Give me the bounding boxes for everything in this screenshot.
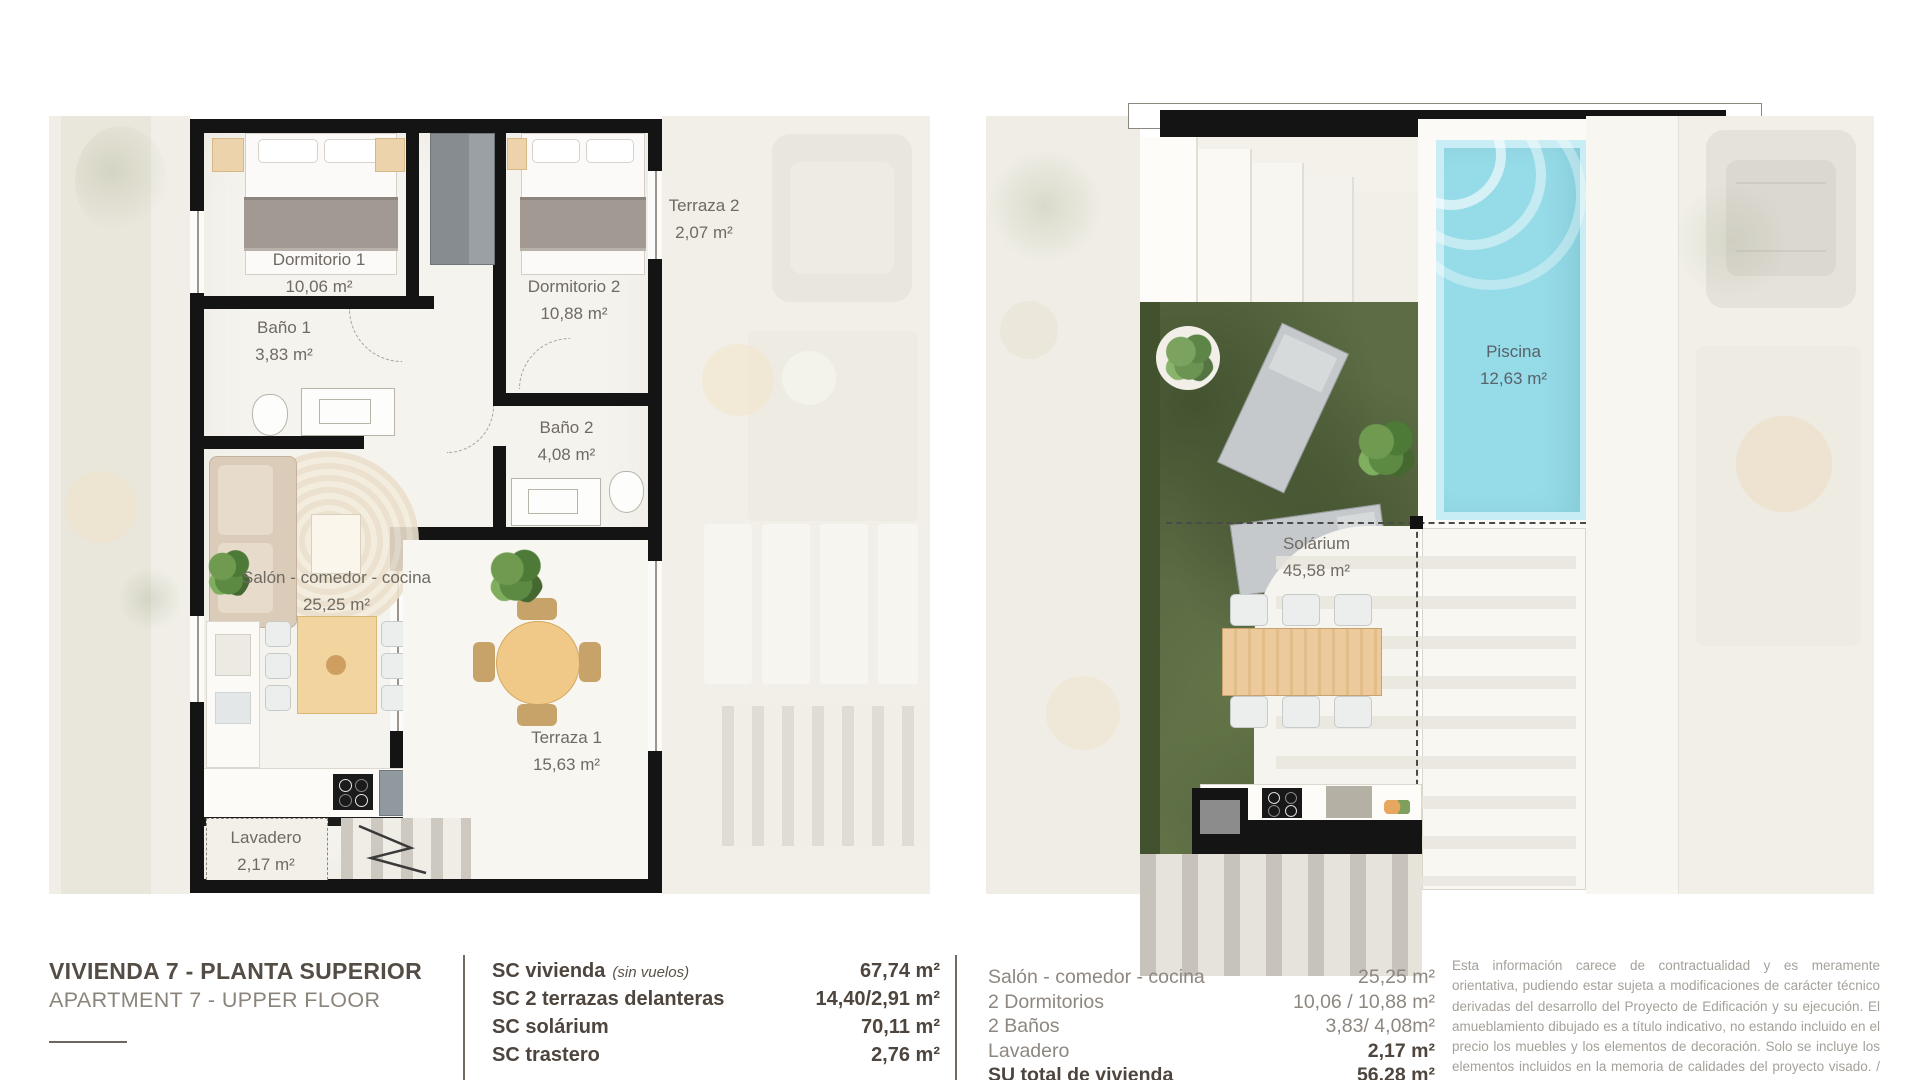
washbasin-bano1 (301, 388, 395, 436)
washbasin-bano2 (511, 478, 601, 526)
wall-bano1-bottom (204, 436, 364, 449)
pool (1436, 140, 1588, 520)
wall-dorm1-right (406, 133, 419, 309)
room-list-row-total: SU total de vivienda 56,28 m² (988, 1064, 1435, 1080)
right-neighbour-area (662, 116, 930, 894)
wall-bano2-left (493, 446, 506, 540)
title-block: VIVIENDA 7 - PLANTA SUPERIOR APARTMENT 7… (49, 958, 449, 1043)
outdoor-hob (1262, 788, 1302, 818)
dining-chairs-left (265, 621, 291, 711)
right-plan-right-neighbour (1586, 116, 1874, 894)
nightstand (507, 138, 527, 170)
floorplan-sheet: Dormitorio 110,06 m² Dormitorio 210,88 m… (0, 0, 1920, 1080)
stairs-top (1140, 137, 1420, 302)
plant-on-grass (1162, 330, 1216, 384)
window (190, 211, 204, 293)
outdoor-chairs-bottom (1230, 696, 1372, 728)
right-plan: Piscina12,63 m² (986, 116, 1874, 894)
terrace-table (496, 621, 580, 705)
neighbour-stairs (722, 706, 930, 846)
room-list-row: 2 Baños 3,83/ 4,08m² (988, 1015, 1435, 1040)
outdoor-sink-cover (1326, 786, 1372, 818)
wall-bottom (190, 879, 662, 893)
neighbour-tree (75, 126, 167, 236)
wall-bano2-top (493, 393, 662, 406)
sofa (209, 456, 297, 628)
storage-block (1192, 788, 1248, 854)
terrace-chair (517, 704, 557, 726)
divider-2 (955, 955, 957, 1080)
plant-on-grass (1354, 416, 1418, 480)
neighbour-round-table2 (1736, 416, 1832, 512)
nightstand (375, 138, 405, 172)
wall-dorm1-bottom (204, 296, 434, 309)
divider-1 (463, 955, 465, 1080)
neighbour-garden (748, 331, 918, 521)
dining-table (297, 616, 377, 714)
fruit-decor (1384, 800, 1410, 814)
stairs-direction-arrow (341, 818, 471, 879)
lavadero (206, 818, 328, 880)
neighbour-foliage (990, 146, 1100, 266)
wall-top (190, 119, 662, 133)
toilet-bano2 (609, 471, 644, 513)
left-neighbour-strip (49, 116, 190, 894)
neighbour-pot (1000, 301, 1058, 359)
page-subtitle: APARTMENT 7 - UPPER FLOOR (49, 988, 449, 1013)
left-plan: Dormitorio 110,06 m² Dormitorio 210,88 m… (49, 116, 930, 894)
kitchen-hob (333, 774, 373, 810)
room-list-row: Salón - comedor - cocina 25,25 m² (988, 966, 1435, 991)
boundary-marker (1410, 516, 1423, 529)
room-list-row-lavadero: Lavadero 2,17 m² (988, 1040, 1435, 1065)
window-slider-terraza (648, 561, 662, 751)
room-list: Salón - comedor - cocina 25,25 m² 2 Dorm… (988, 966, 1435, 1080)
right-plan-left-neighbour (986, 116, 1140, 894)
wall-terraza1-top (390, 527, 662, 540)
neighbour-plant (119, 566, 181, 632)
title-rule (49, 1041, 127, 1043)
sc-row-terrazas: SC 2 terrazas delanteras 14,40/2,91 m² (492, 988, 940, 1016)
toilet-bano1 (252, 394, 288, 436)
sc-row-trastero: SC trastero 2,76 m² (492, 1044, 940, 1072)
sc-row-vivienda: SC vivienda(sin vuelos) 67,74 m² (492, 960, 940, 988)
neighbour-foliage2 (1676, 176, 1786, 306)
neighbour-table (65, 471, 137, 543)
side-table (311, 514, 361, 574)
plant-terraza1 (487, 544, 545, 606)
sc-table: SC vivienda(sin vuelos) 67,74 m² SC 2 te… (492, 960, 940, 1072)
terrace-chair (579, 642, 601, 682)
page-title: VIVIENDA 7 - PLANTA SUPERIOR (49, 958, 449, 985)
terrace-chair (473, 642, 495, 682)
plant-salon (207, 544, 251, 600)
neighbour-car (772, 134, 912, 302)
nightstand (212, 138, 244, 172)
info-band: VIVIENDA 7 - PLANTA SUPERIOR APARTMENT 7… (0, 940, 1920, 1080)
window (190, 616, 204, 702)
solarium-dashed-top (1166, 522, 1586, 524)
kitchen-column (206, 621, 260, 768)
outdoor-table (1222, 628, 1382, 696)
bed-dormitorio-2 (521, 133, 645, 275)
neighbour-round-table (702, 344, 774, 416)
window (648, 171, 662, 259)
neighbour-white-chair (782, 351, 836, 405)
wardrobe (430, 133, 495, 265)
stairs-left-plan (341, 818, 471, 879)
room-list-row: 2 Dormitorios 10,06 / 10,88 m² (988, 991, 1435, 1016)
neighbour-table2 (1046, 676, 1120, 750)
disclaimer: Esta información carece de contractualid… (1452, 956, 1880, 1080)
outdoor-chairs-top (1230, 594, 1372, 626)
sc-row-solarium: SC solárium 70,11 m² (492, 1016, 940, 1044)
